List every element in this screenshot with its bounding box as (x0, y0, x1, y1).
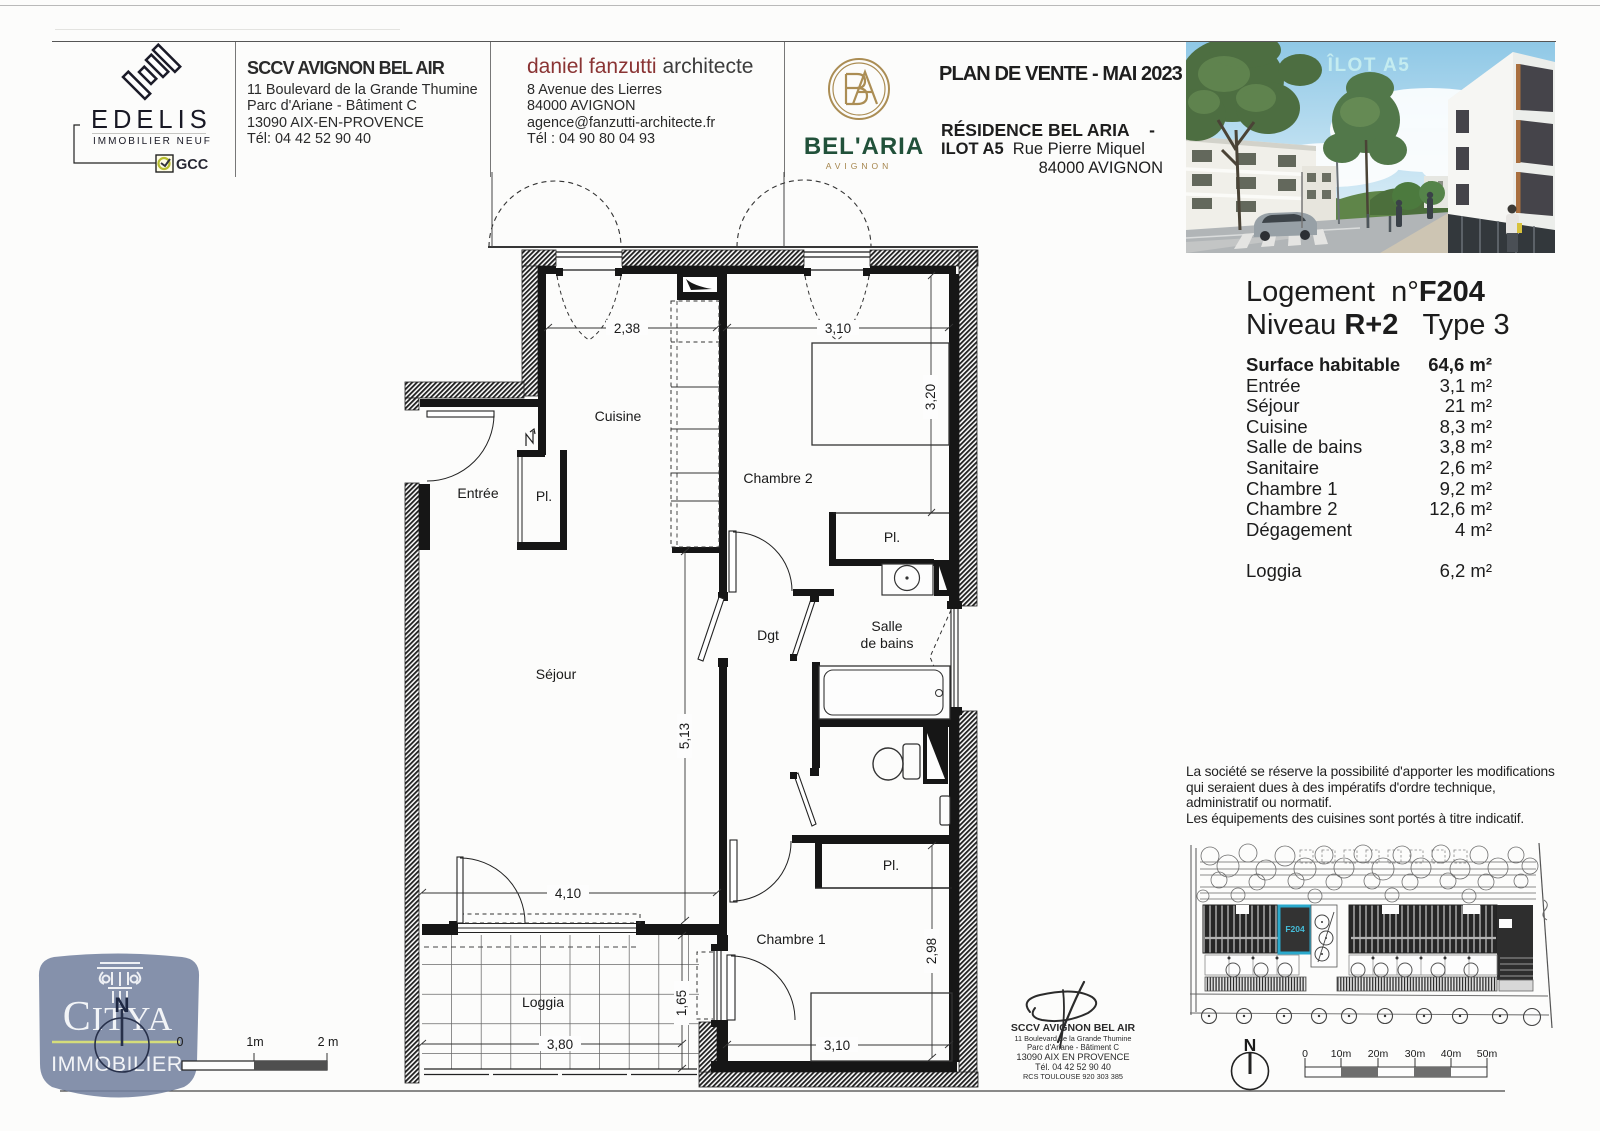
svg-text:1m: 1m (246, 1035, 263, 1049)
svg-text:ÎLOT A5: ÎLOT A5 (1327, 54, 1411, 76)
svg-text:1,65: 1,65 (674, 990, 689, 1016)
svg-text:IMMOBILIER: IMMOBILIER (51, 1052, 183, 1076)
svg-text:Salle: Salle (871, 618, 902, 634)
svg-text:Pl.: Pl. (884, 529, 900, 545)
svg-text:Pl.: Pl. (883, 857, 899, 873)
svg-text:0: 0 (177, 1035, 184, 1049)
svg-text:Chambre 1: Chambre 1 (756, 931, 825, 947)
svg-text:N: N (1244, 1035, 1257, 1055)
svg-text:2 m: 2 m (318, 1035, 339, 1049)
svg-text:Pl.: Pl. (536, 488, 552, 504)
svg-text:3,10: 3,10 (824, 1038, 850, 1053)
svg-text:Dgt: Dgt (757, 627, 779, 643)
svg-text:2,38: 2,38 (614, 321, 640, 336)
svg-text:4,10: 4,10 (555, 886, 581, 901)
svg-text:Loggia: Loggia (522, 994, 564, 1010)
svg-text:Entrée: Entrée (457, 485, 498, 501)
svg-text:EDELIS: EDELIS (91, 106, 212, 134)
svg-text:Cuisine: Cuisine (595, 408, 642, 424)
svg-text:Séjour: Séjour (536, 666, 577, 682)
svg-text:IMMOBILIER NEUF: IMMOBILIER NEUF (93, 136, 212, 147)
svg-text:3,10: 3,10 (825, 321, 851, 336)
svg-text:Chambre 2: Chambre 2 (743, 470, 812, 486)
svg-text:5,13: 5,13 (677, 723, 692, 749)
svg-text:2,98: 2,98 (924, 938, 939, 964)
svg-text:F204: F204 (1285, 924, 1305, 934)
svg-text:3,80: 3,80 (547, 1037, 573, 1052)
svg-text:de bains: de bains (861, 635, 914, 651)
svg-text:N: N (114, 994, 129, 1017)
svg-text:GCC: GCC (176, 157, 209, 173)
svg-text:3,20: 3,20 (923, 384, 938, 410)
